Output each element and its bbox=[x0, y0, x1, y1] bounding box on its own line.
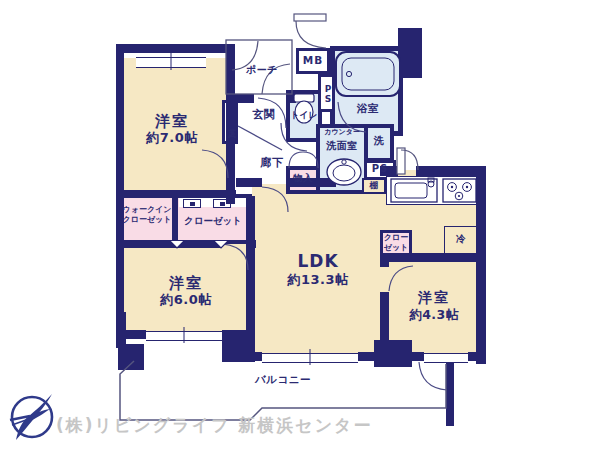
door-leaf bbox=[397, 148, 405, 174]
bathroom-label: 浴室 bbox=[348, 102, 388, 115]
ldk-name: LDK bbox=[278, 251, 358, 272]
balcony-label: バルコニー bbox=[253, 373, 313, 386]
bathtub-icon bbox=[336, 52, 400, 96]
ldk-size: 約13.3帖 bbox=[278, 272, 358, 288]
hallway-label: 廊下 bbox=[250, 156, 294, 169]
room-6-size: 約6.0帖 bbox=[146, 292, 226, 308]
room-43-name: 洋室 bbox=[394, 289, 474, 306]
door-arc bbox=[389, 266, 413, 291]
door-arc bbox=[296, 21, 326, 48]
refrigerator-label: 冷 bbox=[446, 233, 476, 245]
room-6-name: 洋室 bbox=[146, 274, 226, 292]
toilet-label: トイレ bbox=[287, 110, 321, 121]
window-tick bbox=[171, 52, 310, 365]
closet-open-marker bbox=[170, 241, 184, 248]
company-logo bbox=[6, 390, 58, 446]
porch-label: ポーチ bbox=[238, 64, 286, 76]
room-43-size: 約4.3帖 bbox=[394, 307, 474, 322]
door-arc bbox=[262, 187, 288, 212]
laundry-label: 洗 bbox=[370, 135, 388, 147]
pipe-space-lower-label: PS bbox=[364, 163, 396, 175]
door-leaf bbox=[294, 14, 326, 21]
washroom-label: 洗面室 bbox=[320, 140, 364, 152]
door-arc bbox=[281, 123, 307, 151]
closet-small-label: クロー ゼット bbox=[381, 233, 411, 253]
door-arc bbox=[222, 244, 248, 270]
room-7-name: 洋室 bbox=[132, 112, 212, 130]
shoe-cabinet-label: 下足入 bbox=[225, 103, 236, 143]
shelf-label: 棚 bbox=[362, 180, 386, 190]
door-arc bbox=[419, 362, 447, 390]
kitchen-sink-icon bbox=[391, 178, 437, 202]
balcony-outline bbox=[120, 361, 446, 420]
door-arc bbox=[202, 150, 228, 178]
door-arc bbox=[303, 152, 318, 168]
closet-label: クローゼット bbox=[176, 215, 250, 227]
counter-label: カウンター bbox=[319, 128, 365, 137]
room-7-size: 約7.0帖 bbox=[132, 130, 212, 146]
entrance-step-line bbox=[238, 126, 282, 150]
pipe-space-upper-label: PS bbox=[322, 77, 333, 111]
stove-icon bbox=[443, 179, 476, 202]
meter-box-label: MB bbox=[296, 54, 330, 67]
walk-in-closet-label: ウォークイン クローゼット bbox=[118, 205, 176, 225]
entrance-label: 玄関 bbox=[242, 108, 286, 121]
washbasin-icon bbox=[327, 159, 361, 185]
company-watermark: (株)リビングライフ 新横浜センター bbox=[56, 414, 372, 437]
storage-label: 物入 bbox=[288, 172, 318, 184]
floor-plan: 洋室 約7.0帖 洋室 約6.0帖 LDK 約13.3帖 洋室 約4.3帖 バル… bbox=[0, 0, 600, 450]
